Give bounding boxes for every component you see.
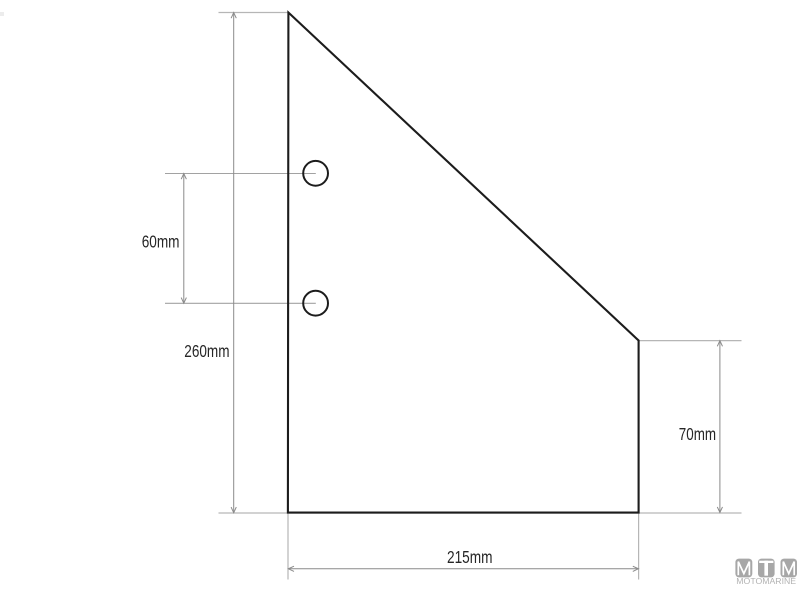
svg-text:260mm: 260mm [184, 341, 229, 361]
svg-text:MOTOMARINE: MOTOMARINE [736, 576, 796, 586]
svg-text:215mm: 215mm [447, 547, 493, 567]
svg-text:60mm: 60mm [142, 232, 180, 252]
svg-text:70mm: 70mm [679, 424, 716, 444]
